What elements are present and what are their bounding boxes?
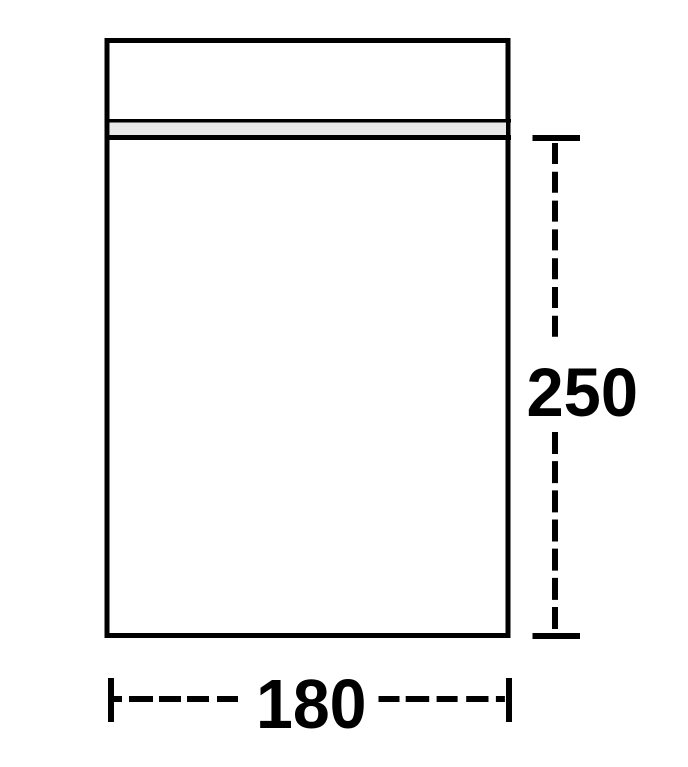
svg-text:250: 250 [527,354,639,431]
svg-text:180: 180 [256,665,367,743]
